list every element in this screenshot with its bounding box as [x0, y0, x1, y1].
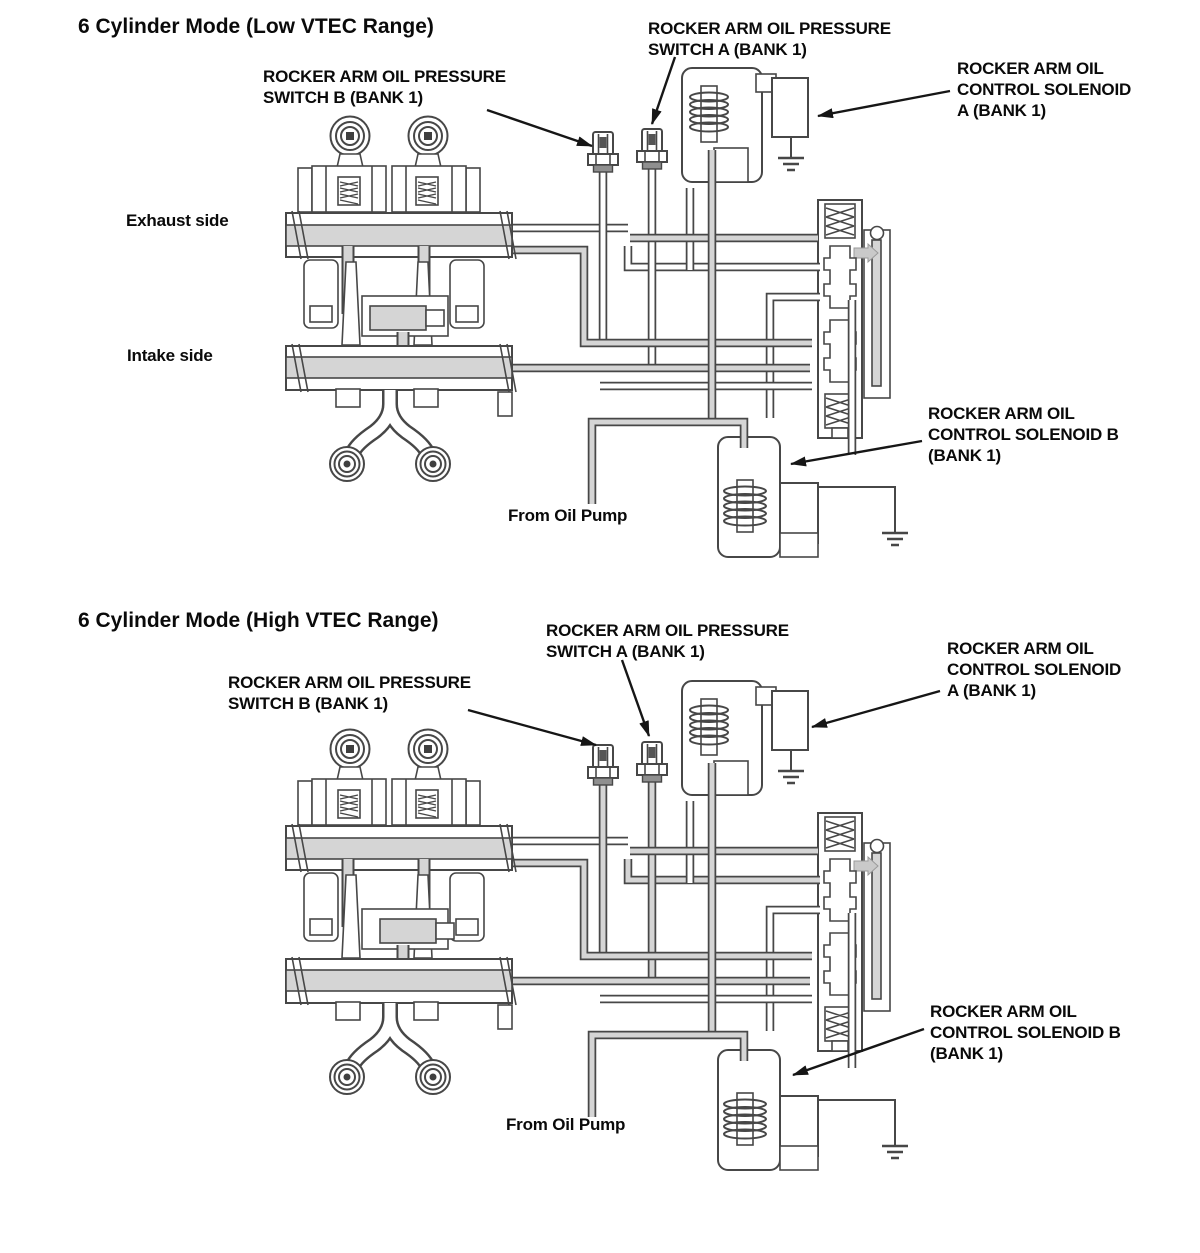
low-vtec-diagram — [286, 57, 950, 557]
high-vtec-diagram — [286, 660, 940, 1170]
high-solenoid-a-label: ROCKER ARM OIL CONTROL SOLENOID A (BANK … — [947, 638, 1121, 701]
exhaust-side-label: Exhaust side — [126, 210, 228, 231]
high-vtec-machinery — [286, 681, 908, 1170]
high-vtec-title: 6 Cylinder Mode (High VTEC Range) — [78, 608, 439, 633]
low-solenoid-a-label: ROCKER ARM OIL CONTROL SOLENOID A (BANK … — [957, 58, 1131, 121]
page: 6 Cylinder Mode (Low VTEC Range) ROCKER … — [0, 0, 1200, 1253]
label-arrow — [652, 57, 675, 124]
low-from-oil-pump-label: From Oil Pump — [508, 505, 627, 526]
label-arrow — [791, 441, 922, 464]
low-vtec-machinery — [286, 68, 908, 557]
label-arrow — [818, 91, 950, 116]
high-from-oil-pump-label: From Oil Pump — [506, 1114, 625, 1135]
low-switch-b-label: ROCKER ARM OIL PRESSURE SWITCH B (BANK 1… — [263, 66, 506, 108]
high-solenoid-b-label: ROCKER ARM OIL CONTROL SOLENOID B (BANK … — [930, 1001, 1121, 1064]
low-switch-a-label: ROCKER ARM OIL PRESSURE SWITCH A (BANK 1… — [648, 18, 891, 60]
label-arrow — [487, 110, 592, 146]
low-vtec-title: 6 Cylinder Mode (Low VTEC Range) — [78, 14, 434, 39]
high-switch-b-label: ROCKER ARM OIL PRESSURE SWITCH B (BANK 1… — [228, 672, 471, 714]
high-switch-a-label: ROCKER ARM OIL PRESSURE SWITCH A (BANK 1… — [546, 620, 789, 662]
low-solenoid-b-label: ROCKER ARM OIL CONTROL SOLENOID B (BANK … — [928, 403, 1119, 466]
label-arrow — [622, 660, 649, 736]
label-arrow — [812, 691, 940, 727]
label-arrow — [468, 710, 596, 745]
intake-side-label: Intake side — [127, 345, 213, 366]
